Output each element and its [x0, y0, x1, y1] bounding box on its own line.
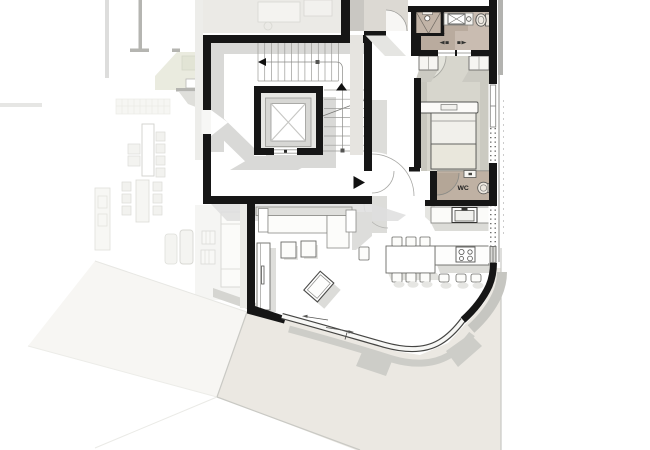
svg-text:WC: WC [458, 185, 469, 192]
